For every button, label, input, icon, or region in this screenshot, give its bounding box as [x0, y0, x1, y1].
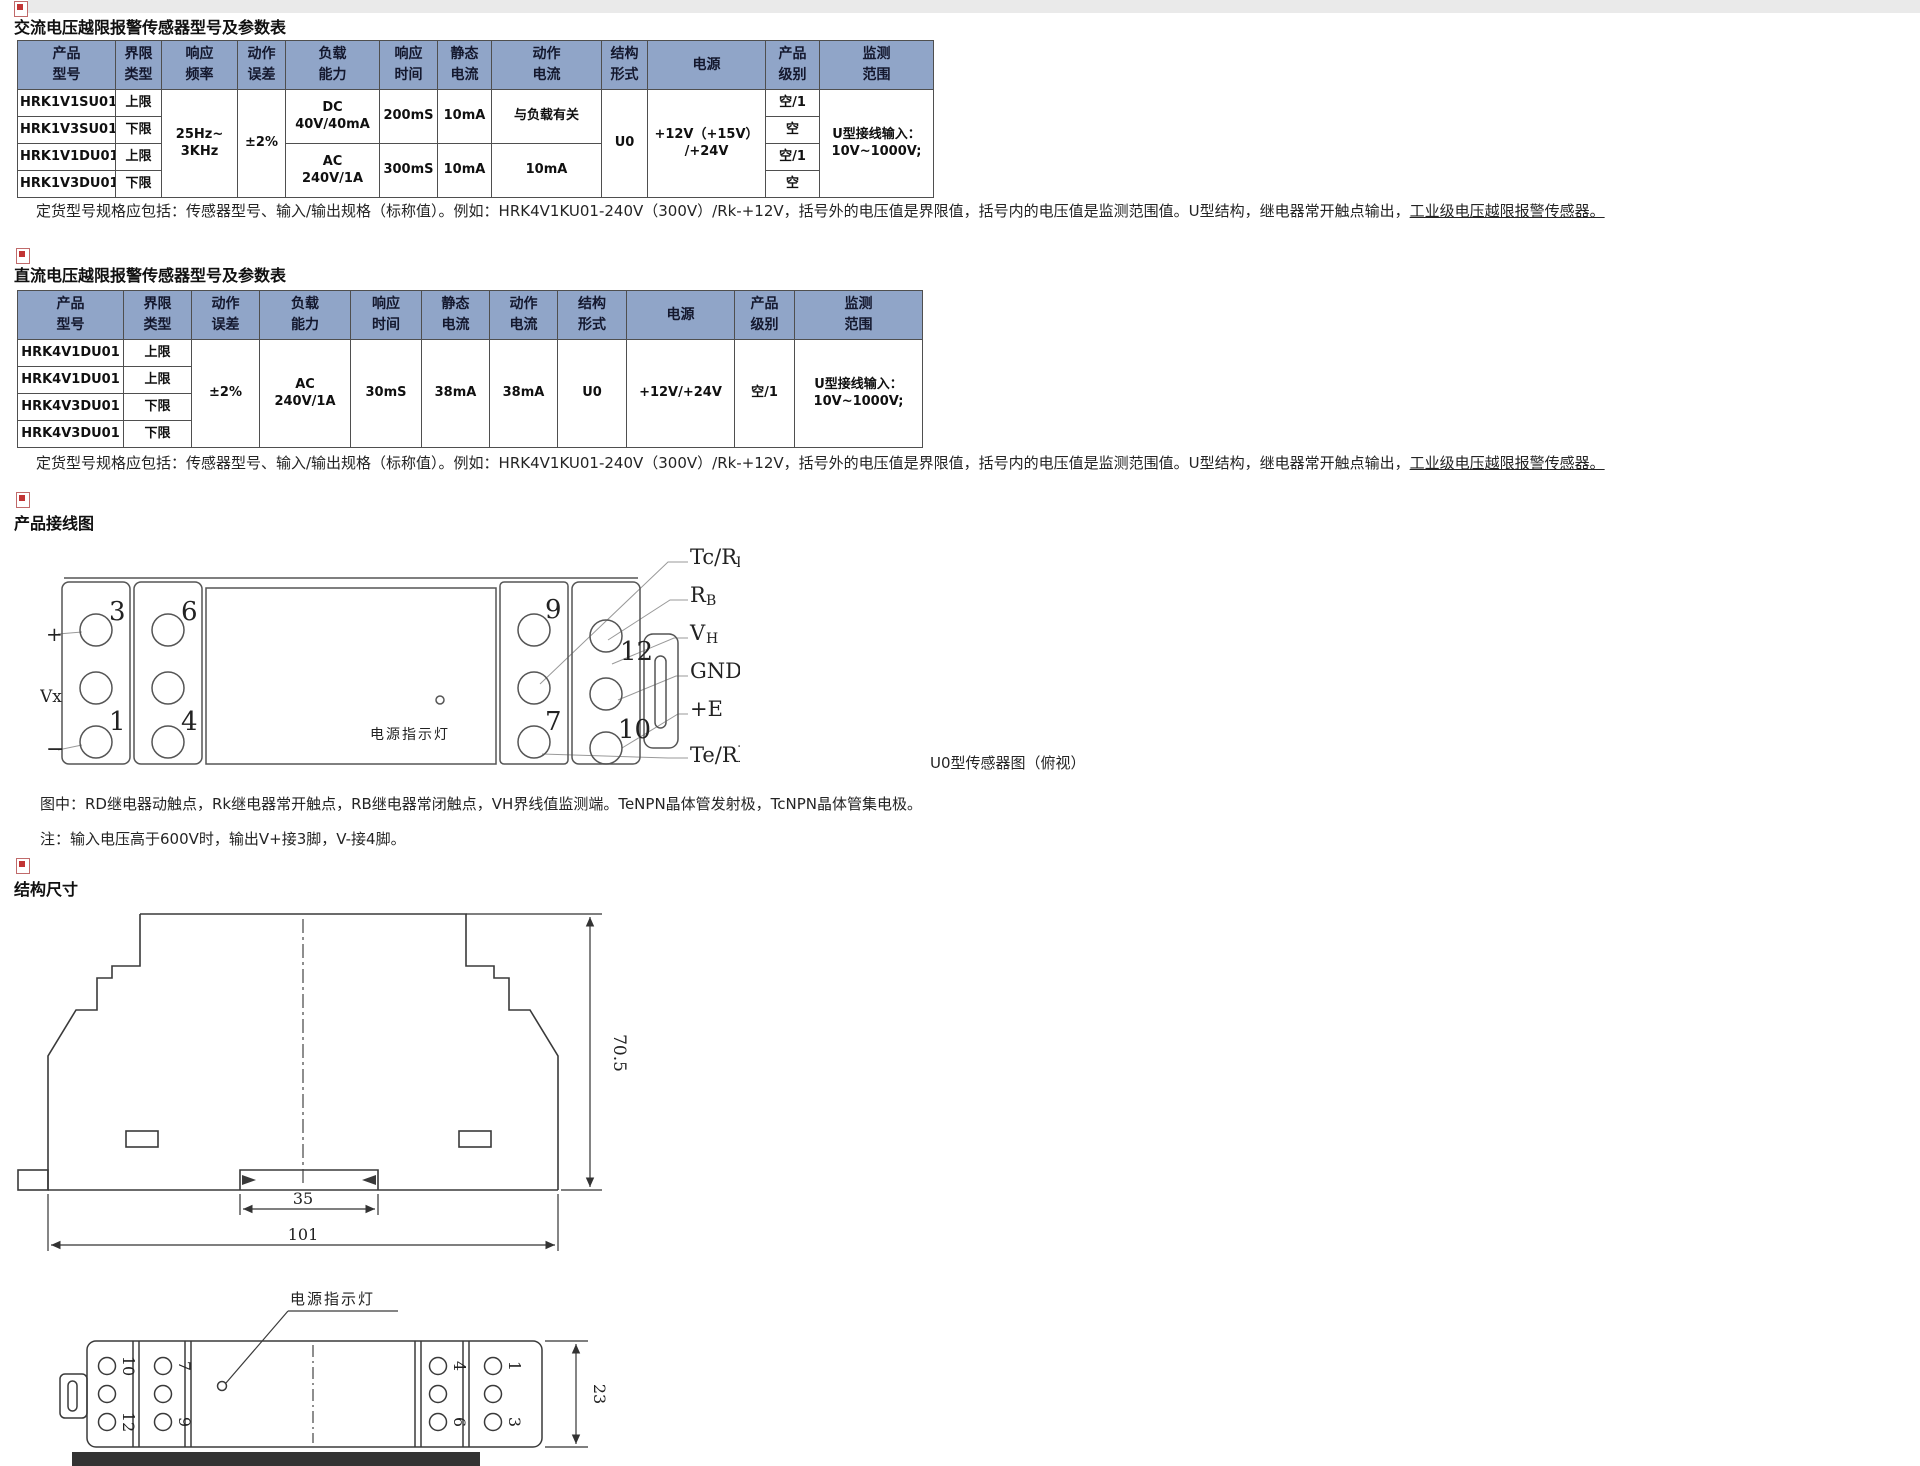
table-cell: 下限 — [116, 171, 162, 198]
table-cell: HRK1V1SU01 — [18, 90, 116, 117]
column-header: 静态 电流 — [422, 291, 490, 340]
table-cell: 空/1 — [735, 340, 795, 448]
table-cell: AC 240V/1A — [286, 144, 380, 198]
power-led-label: 电源指示灯 — [290, 1290, 375, 1308]
pin-label-rb: R — [690, 583, 707, 607]
column-header: 产品 型号 — [18, 41, 116, 90]
terminal-3: 3 — [505, 1417, 524, 1427]
table-cell: 上限 — [116, 144, 162, 171]
table-cell: 空 — [766, 171, 820, 198]
table-cell: +12V（+15V） /+24V — [648, 90, 766, 198]
table-cell: 30mS — [351, 340, 422, 448]
terminal-7: 7 — [175, 1361, 194, 1371]
dim-rail-35: 35 — [293, 1189, 313, 1208]
table-cell: HRK1V3DU01 — [18, 171, 116, 198]
table-cell: HRK4V1DU01 — [18, 367, 124, 394]
notch-arrow-right — [362, 1175, 376, 1185]
column-header: 结构 形式 — [602, 41, 648, 90]
column-header: 响应 时间 — [351, 291, 422, 340]
pin-label-vh-sub: H — [706, 631, 718, 647]
terminal-4: 4 — [181, 707, 198, 737]
pin-label-rb-sub: B — [706, 593, 716, 609]
column-header: 监测 范围 — [795, 291, 923, 340]
ac-order-note-underlined: 工业级电压越限报警传感器。 — [1410, 202, 1605, 220]
dc-order-note-text: 定货型号规格应包括：传感器型号、输入/输出规格（标称值）。例如：HRK4V1KU… — [36, 454, 1410, 472]
side-profile-drawing: 70.5 35 101 — [10, 903, 650, 1268]
wiring-legend: 图中：RD继电器动触点，Rk继电器常开触点，RB继电器常闭触点，VH界线值监测端… — [40, 793, 922, 814]
column-header: 电源 — [648, 41, 766, 90]
column-header: 产品 级别 — [766, 41, 820, 90]
top-edge-strip — [28, 0, 1920, 13]
table-cell: U型接线输入： 10V~1000V; — [820, 90, 934, 198]
input-vx-label: Vx — [40, 687, 62, 707]
terminal-1: 1 — [109, 707, 126, 737]
table-cell: 空/1 — [766, 144, 820, 171]
table-cell: 300mS — [380, 144, 438, 198]
table-header-row: 产品 型号界限 类型响应 频率动作 误差负载 能力响应 时间静态 电流动作 电流… — [18, 41, 934, 90]
column-header: 结构 形式 — [558, 291, 627, 340]
column-header: 动作 电流 — [492, 41, 602, 90]
table-cell: 10mA — [492, 144, 602, 198]
input-minus-label: − — [46, 737, 64, 762]
terminal-3: 3 — [109, 597, 126, 627]
wiring-caption: U0型传感器图（俯视） — [930, 752, 1086, 773]
column-header: 响应 频率 — [162, 41, 238, 90]
column-header: 动作 误差 — [192, 291, 260, 340]
dim-height-70-5: 70.5 — [609, 1034, 629, 1072]
terminal-9: 9 — [175, 1417, 194, 1427]
column-header: 界限 类型 — [116, 41, 162, 90]
pin-label-vh: V — [689, 621, 706, 645]
table-cell: 10mA — [438, 90, 492, 144]
table-cell: AC 240V/1A — [260, 340, 351, 448]
notch-arrow-left — [242, 1175, 256, 1185]
section-heading-dc: 直流电压越限报警传感器型号及参数表 — [14, 262, 286, 286]
column-header: 监测 范围 — [820, 41, 934, 90]
table-cell: 下限 — [116, 117, 162, 144]
wiring-diagram: 3 1 6 4 9 7 12 10 + Vx − 电源指示灯 Tc/R D R … — [40, 542, 740, 787]
pin-label-te-rk: Te/Rk — [690, 743, 740, 767]
terminal-9: 9 — [545, 595, 562, 625]
power-led-label: 电源指示灯 — [370, 727, 450, 743]
table-cell: ±2% — [192, 340, 260, 448]
column-header: 动作 误差 — [238, 41, 286, 90]
dc-parameters-table: 产品 型号界限 类型动作 误差负载 能力响应 时间静态 电流动作 电流结构 形式… — [17, 290, 923, 448]
table-cell: 38mA — [490, 340, 558, 448]
section-heading-wiring: 产品接线图 — [14, 510, 94, 534]
table-cell: 10mA — [438, 144, 492, 198]
terminal-10: 10 — [618, 715, 651, 745]
table-cell: 空 — [766, 117, 820, 144]
column-header: 静态 电流 — [438, 41, 492, 90]
table-cell: 空/1 — [766, 90, 820, 117]
cutoff-element-edge — [72, 1452, 480, 1466]
ac-parameters-table: 产品 型号界限 类型响应 频率动作 误差负载 能力响应 时间静态 电流动作 电流… — [17, 40, 934, 198]
din-rail-notch — [240, 1170, 378, 1190]
power-led-dot — [436, 696, 444, 704]
table-cell: +12V/+24V — [627, 340, 735, 448]
table-cell: U0 — [558, 340, 627, 448]
table-cell: 25Hz~ 3KHz — [162, 90, 238, 198]
input-plus-label: + — [46, 622, 63, 646]
dc-order-note: 定货型号规格应包括：传感器型号、输入/输出规格（标称值）。例如：HRK4V1KU… — [14, 452, 1920, 473]
column-header: 产品 型号 — [18, 291, 124, 340]
table-cell: 与负载有关 — [492, 90, 602, 144]
terminal-7: 7 — [545, 707, 562, 737]
terminal-10: 10 — [119, 1356, 138, 1376]
section-heading-dimensions: 结构尺寸 — [14, 876, 78, 900]
column-header: 动作 电流 — [490, 291, 558, 340]
broken-image-icon — [16, 858, 30, 874]
table-cell: HRK4V3DU01 — [18, 421, 124, 448]
table-cell: HRK4V3DU01 — [18, 394, 124, 421]
dc-order-note-underlined: 工业级电压越限报警传感器。 — [1410, 454, 1605, 472]
power-led-dot — [218, 1382, 227, 1391]
led-leader — [226, 1311, 398, 1383]
table-cell: U0 — [602, 90, 648, 198]
terminal-12: 12 — [119, 1412, 138, 1432]
section-heading-ac: 交流电压越限报警传感器型号及参数表 — [14, 14, 286, 38]
pin-label-tc-rd: Tc/R — [690, 545, 738, 569]
table-cell: HRK1V3SU01 — [18, 117, 116, 144]
terminal-4: 4 — [450, 1361, 469, 1371]
ac-order-note: 定货型号规格应包括：传感器型号、输入/输出规格（标称值）。例如：HRK4V1KU… — [14, 200, 1920, 221]
terminal-12: 12 — [620, 637, 653, 667]
table-cell: 下限 — [124, 421, 192, 448]
table-header-row: 产品 型号界限 类型动作 误差负载 能力响应 时间静态 电流动作 电流结构 形式… — [18, 291, 923, 340]
table-cell: 上限 — [124, 367, 192, 394]
table-cell: DC 40V/40mA — [286, 90, 380, 144]
page: 交流电压越限报警传感器型号及参数表 产品 型号界限 类型响应 频率动作 误差负载… — [0, 0, 1920, 1466]
ac-order-note-text: 定货型号规格应包括：传感器型号、输入/输出规格（标称值）。例如：HRK4V1KU… — [36, 202, 1410, 220]
table-cell: U型接线输入： 10V~1000V; — [795, 340, 923, 448]
dim-width-101: 101 — [288, 1225, 319, 1244]
column-header: 电源 — [627, 291, 735, 340]
table-row: HRK1V1DU01上限AC 240V/1A300mS10mA10mA空/1 — [18, 144, 934, 171]
terminal-6: 6 — [181, 597, 198, 627]
column-header: 界限 类型 — [124, 291, 192, 340]
table-cell: 上限 — [116, 90, 162, 117]
wiring-note: 注：输入电压高于600V时，输出V+接3脚，V-接4脚。 — [40, 828, 406, 849]
din-clip-tab — [18, 1170, 48, 1190]
pin-label-plus-e: +E — [690, 697, 723, 721]
table-cell: HRK4V1DU01 — [18, 340, 124, 367]
dim-depth-23: 23 — [590, 1384, 609, 1404]
table-row: HRK4V1DU01上限±2%AC 240V/1A30mS38mA38mAU0+… — [18, 340, 923, 367]
terminal-1: 1 — [505, 1361, 524, 1371]
profile-outline — [18, 914, 558, 1190]
table-row: HRK1V1SU01上限25Hz~ 3KHz±2%DC 40V/40mA200m… — [18, 90, 934, 117]
dimension-lines — [48, 914, 602, 1251]
mount-slot-left — [126, 1131, 158, 1147]
column-header: 负载 能力 — [286, 41, 380, 90]
top-view-drawing: 电源指示灯 10 12 7 9 4 6 1 3 23 — [20, 1280, 640, 1466]
table-cell: 下限 — [124, 394, 192, 421]
terminal-6: 6 — [450, 1417, 469, 1427]
dimension-lines — [545, 1341, 588, 1447]
table-cell: 上限 — [124, 340, 192, 367]
table-cell: HRK1V1DU01 — [18, 144, 116, 171]
pin-labels: Tc/R D R B V H GND +E Te/Rk — [689, 545, 740, 767]
pin-label-gnd: GND — [690, 659, 740, 683]
table-cell: ±2% — [238, 90, 286, 198]
column-header: 产品 级别 — [735, 291, 795, 340]
table-cell: 38mA — [422, 340, 490, 448]
column-header: 响应 时间 — [380, 41, 438, 90]
column-header: 负载 能力 — [260, 291, 351, 340]
mount-slot-right — [459, 1131, 491, 1147]
table-cell: 200mS — [380, 90, 438, 144]
pin-label-tc-rd-sub: D — [736, 555, 740, 571]
broken-image-icon — [16, 492, 30, 508]
